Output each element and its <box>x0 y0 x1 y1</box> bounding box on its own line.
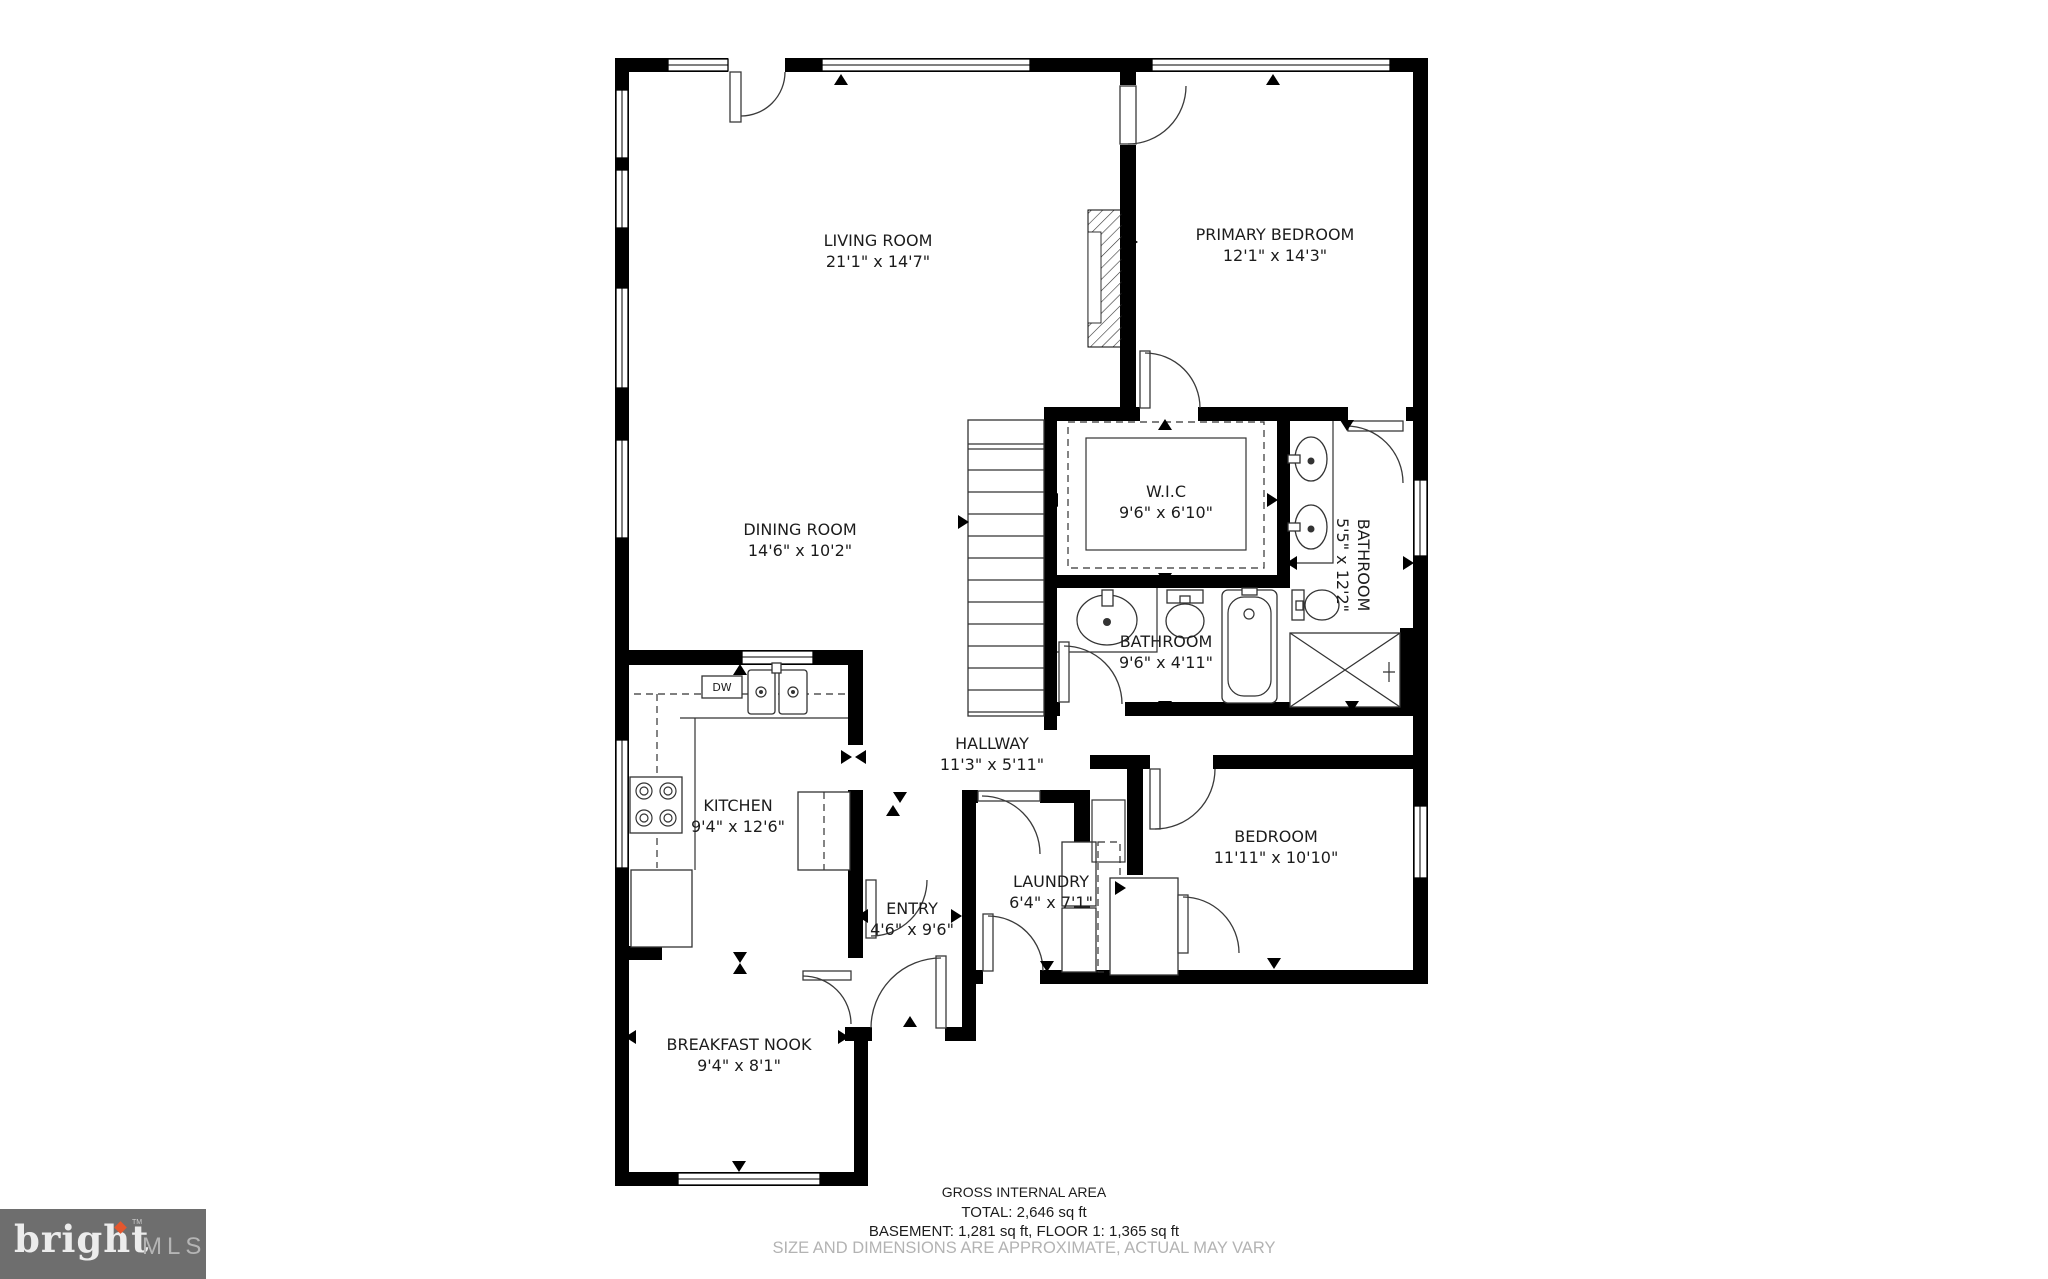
laundry-exterior-door <box>983 914 1043 971</box>
hall-bathroom-door <box>1059 642 1122 704</box>
logo-suffix-text: MLS <box>142 1233 206 1261</box>
bathtub <box>1222 588 1277 703</box>
refrigerator <box>631 870 692 947</box>
living-room-dims: 21'1" x 14'7" <box>826 252 930 271</box>
shower <box>1290 633 1400 707</box>
kitchen-pantry <box>798 792 850 870</box>
laundry-name: LAUNDRY <box>1013 872 1089 891</box>
primary-bathroom-door <box>1346 421 1403 483</box>
logo-brand-text: bright <box>14 1217 149 1261</box>
living-room-exterior-door <box>730 72 785 122</box>
dishwasher-label: DW <box>712 681 731 694</box>
logo-trademark: TM <box>132 1219 142 1226</box>
wic-door <box>1140 351 1200 408</box>
primary-bathroom-dims: 5'5" x 12'2" <box>1333 518 1352 612</box>
footer-total: TOTAL: 2,646 sq ft <box>961 1204 1087 1221</box>
entry-dims: 4'6" x 9'6" <box>870 920 954 939</box>
dining-room-dims: 14'6" x 10'2" <box>748 541 852 560</box>
room-label-dining-room: DINING ROOM 14'6" x 10'2" <box>743 520 856 560</box>
bright-mls-logo: bright TM MLS <box>0 1209 206 1279</box>
room-label-primary-bedroom: PRIMARY BEDROOM 12'1" x 14'3" <box>1196 225 1355 265</box>
footer-breakdown: BASEMENT: 1,281 sq ft, FLOOR 1: 1,365 sq… <box>869 1223 1180 1240</box>
primary-bedroom-door <box>1120 86 1186 144</box>
floor-plan-page: LIVING ROOM 21'1" x 14'7" PRIMARY BEDROO… <box>0 0 2048 1279</box>
hall-bathroom-dims: 9'6" x 4'11" <box>1119 653 1213 672</box>
footer-title: GROSS INTERNAL AREA <box>942 1184 1107 1200</box>
floor-plan-canvas: LIVING ROOM 21'1" x 14'7" PRIMARY BEDROO… <box>0 0 2048 1279</box>
bedroom-dims: 11'11" x 10'10" <box>1214 848 1339 867</box>
primary-bedroom-dims: 12'1" x 14'3" <box>1223 246 1327 265</box>
front-door <box>871 956 946 1028</box>
primary-toilet <box>1292 590 1339 620</box>
primary-bedroom-name: PRIMARY BEDROOM <box>1196 225 1355 244</box>
bedroom-closet <box>1110 878 1178 975</box>
primary-bathroom-vanity <box>1288 421 1333 563</box>
dining-room-name: DINING ROOM <box>743 520 856 539</box>
kitchen-dims: 9'4" x 12'6" <box>691 817 785 836</box>
bedroom-name: BEDROOM <box>1234 827 1318 846</box>
wic-name: W.I.C <box>1146 482 1186 501</box>
room-label-wic: W.I.C 9'6" x 6'10" <box>1119 482 1213 522</box>
staircase <box>968 420 1044 716</box>
room-label-primary-bathroom: BATHROOM 5'5" x 12'2" <box>1333 518 1373 612</box>
hall-bathroom-name: BATHROOM <box>1120 632 1213 651</box>
footer-disclaimer: SIZE AND DIMENSIONS ARE APPROXIMATE, ACT… <box>772 1239 1275 1257</box>
kitchen-name: KITCHEN <box>703 796 772 815</box>
breakfast-nook-name: BREAKFAST NOOK <box>667 1035 812 1054</box>
primary-bathroom-name: BATHROOM <box>1354 519 1373 612</box>
entry-name: ENTRY <box>886 899 938 918</box>
room-label-bedroom: BEDROOM 11'11" x 10'10" <box>1214 827 1339 867</box>
stove <box>630 777 682 833</box>
room-label-breakfast-nook: BREAKFAST NOOK 9'4" x 8'1" <box>667 1035 812 1075</box>
room-label-kitchen: KITCHEN 9'4" x 12'6" <box>691 796 785 836</box>
fireplace <box>1088 210 1122 347</box>
hallway-dims: 11'3" x 5'11" <box>940 755 1044 774</box>
laundry-door <box>978 791 1040 854</box>
laundry-dims: 6'4" x 7'1" <box>1009 893 1093 912</box>
bedroom-closet-door <box>1178 895 1239 953</box>
kitchen-sink <box>748 663 807 714</box>
room-label-hallway: HALLWAY 11'3" x 5'11" <box>940 734 1044 774</box>
hall-toilet <box>1166 590 1204 638</box>
bedroom-door <box>1150 769 1215 829</box>
wic-dims: 9'6" x 6'10" <box>1119 503 1213 522</box>
hallway-name: HALLWAY <box>955 734 1029 753</box>
breakfast-nook-dims: 9'4" x 8'1" <box>697 1056 781 1075</box>
living-room-name: LIVING ROOM <box>824 231 933 250</box>
footer: GROSS INTERNAL AREA TOTAL: 2,646 sq ft B… <box>772 1184 1275 1257</box>
laundry-shelf <box>1092 800 1125 862</box>
room-label-living-room: LIVING ROOM 21'1" x 14'7" <box>824 231 933 271</box>
breakfast-nook-door <box>803 971 851 1024</box>
